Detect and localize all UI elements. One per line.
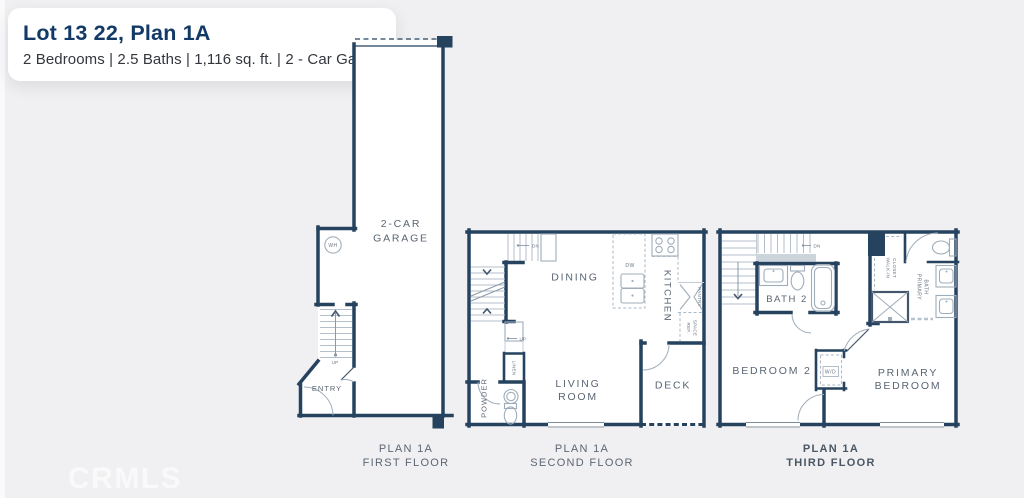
- wh-label: WH: [328, 243, 337, 249]
- walkin-label-line1: WALK-IN: [886, 258, 891, 279]
- garage-label-line1: 2-CAR: [381, 218, 422, 230]
- linen-label: LINEN: [512, 361, 517, 376]
- primary-bath-label-line2: BATH: [923, 280, 929, 295]
- bath2-label: BATH 2: [766, 294, 808, 305]
- primary-bedroom-label-line2: BEDROOM: [875, 380, 942, 392]
- floor-plan-page: Lot 13 22, Plan 1A 2 Bedrooms | 2.5 Bath…: [0, 0, 1024, 498]
- bedroom2-window: [746, 422, 800, 429]
- primary-bedroom-window: [880, 422, 944, 429]
- deck-label: DECK: [655, 380, 691, 392]
- up-label: UP: [520, 337, 527, 342]
- garage-label-line2: GARAGE: [373, 233, 429, 245]
- ref-space-label-line2: SPACE: [693, 320, 698, 336]
- walkin-label-line2: CLOSET: [892, 258, 897, 278]
- dishwasher-label: DW: [625, 263, 634, 269]
- bedroom2-label: BEDROOM 2: [732, 365, 811, 377]
- powder-label: POWDER: [480, 378, 489, 418]
- caption-third-floor-line1: PLAN 1A: [786, 443, 875, 457]
- caption-third-floor-line2: THIRD FLOOR: [786, 457, 875, 471]
- crmls-watermark: CRMLS: [68, 462, 182, 496]
- left-edge-strip: [0, 0, 5, 498]
- dining-label: DINING: [551, 272, 599, 284]
- pantry-label: PANTRY: [697, 287, 702, 307]
- ref-space-label-line1: REF.: [686, 323, 691, 334]
- first-floor-plan: UP WH 2-CAR GARAGE ENTRY: [288, 30, 460, 434]
- living-room-label-line1: LIVING: [555, 378, 600, 390]
- caption-third-floor: PLAN 1A THIRD FLOOR: [786, 443, 875, 470]
- caption-first-floor-line1: PLAN 1A: [363, 443, 450, 457]
- kitchen-label: KITCHEN: [662, 270, 673, 322]
- third-floor-plan: DN BATH 2 W/D: [710, 220, 966, 434]
- living-room-label-line2: ROOM: [558, 391, 598, 403]
- living-room-window: [548, 422, 604, 429]
- shower: [872, 292, 908, 322]
- dn-label: DN: [814, 244, 821, 249]
- entry-label: ENTRY: [312, 384, 342, 393]
- third-floor-footprint: [720, 232, 958, 426]
- primary-bedroom-label-line1: PRIMARY: [878, 367, 938, 379]
- second-floor-plan: DN UP LINEN: [458, 220, 712, 434]
- caption-first-floor-line2: FIRST FLOOR: [363, 457, 450, 471]
- dn-label: DN: [532, 244, 539, 249]
- caption-first-floor: PLAN 1A FIRST FLOOR: [363, 443, 450, 470]
- caption-second-floor: PLAN 1A SECOND FLOOR: [530, 443, 634, 470]
- wd-label: W/D: [825, 370, 836, 376]
- up-label: UP: [332, 360, 339, 365]
- caption-second-floor-line1: PLAN 1A: [530, 443, 634, 457]
- primary-bath-label-line1: PRIMARY: [916, 274, 922, 300]
- water-heater: WH: [325, 237, 341, 253]
- caption-second-floor-line2: SECOND FLOOR: [530, 457, 634, 471]
